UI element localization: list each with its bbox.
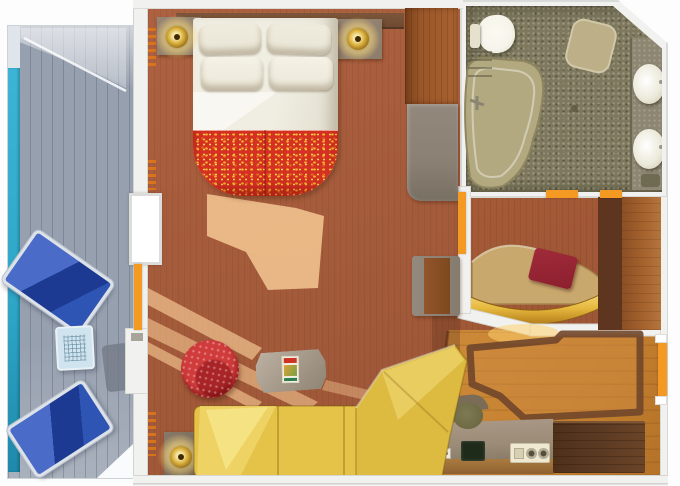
bathroom	[460, 0, 668, 198]
wall-unit	[125, 328, 148, 394]
pillow	[266, 23, 331, 55]
bedside-lamp-left	[166, 26, 188, 48]
tap-icon	[659, 145, 666, 149]
power-outlet	[434, 448, 451, 459]
desk-unit-top	[424, 258, 450, 314]
dresser-unit	[407, 104, 458, 201]
coffee-maker	[510, 443, 550, 463]
door-jamb	[655, 334, 667, 343]
entry-door	[658, 343, 667, 396]
corner-lamp	[170, 446, 192, 468]
bathroom-floor	[466, 6, 662, 192]
burner-icon	[526, 448, 537, 459]
hall-stool	[445, 393, 491, 435]
wardrobe	[405, 8, 458, 104]
sink-1	[633, 64, 665, 104]
serving-tray	[461, 441, 485, 461]
hall-cabinet	[553, 421, 645, 473]
pillow	[201, 57, 263, 90]
closet-interior	[598, 197, 624, 330]
sunlight-haze	[8, 26, 133, 90]
menu-card-art	[284, 365, 297, 376]
table-grid	[63, 334, 86, 361]
coffee-table	[255, 349, 328, 394]
closet-threshold	[600, 190, 622, 198]
wall-unit-label	[131, 333, 143, 341]
sink-2	[633, 129, 665, 169]
menu-card-art	[284, 378, 297, 381]
door-jamb	[655, 396, 667, 405]
floor-plan	[0, 0, 680, 486]
menu-card	[282, 356, 299, 383]
balcony-rail-cap	[8, 26, 20, 70]
balcony-side-table	[55, 325, 95, 371]
menu-card-art	[284, 358, 297, 363]
coffee-maker-body	[514, 448, 524, 459]
pillow	[269, 57, 333, 90]
tap-icon	[659, 80, 666, 84]
floor-drain	[571, 105, 578, 112]
curtain	[148, 412, 156, 456]
cabin-window	[129, 193, 162, 265]
closet	[622, 197, 661, 330]
curtain	[148, 160, 156, 190]
burner-icon	[538, 448, 549, 459]
bedside-lamp-right	[347, 28, 369, 50]
wall-desk-unit	[412, 256, 460, 316]
pillow	[198, 23, 261, 55]
toilet-tank	[470, 24, 480, 48]
dressing-door	[458, 192, 466, 254]
bathroom-threshold	[546, 190, 578, 198]
runner-seam	[264, 130, 266, 196]
wall-bottom	[133, 475, 668, 483]
toilet	[476, 13, 517, 55]
shower-fitting	[641, 174, 660, 187]
balcony-door	[134, 264, 142, 330]
bath-mat	[563, 16, 620, 76]
